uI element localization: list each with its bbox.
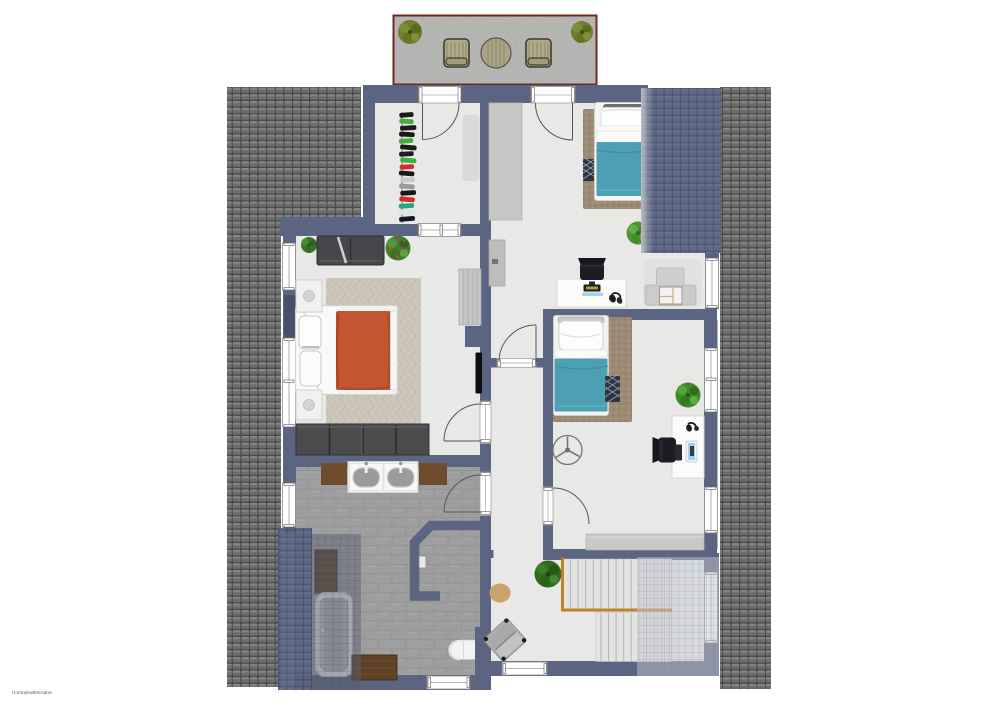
svg-text:Dimensions plan - erstellt mit: Dimensions plan - erstellt mit roomplann… (12, 690, 53, 695)
